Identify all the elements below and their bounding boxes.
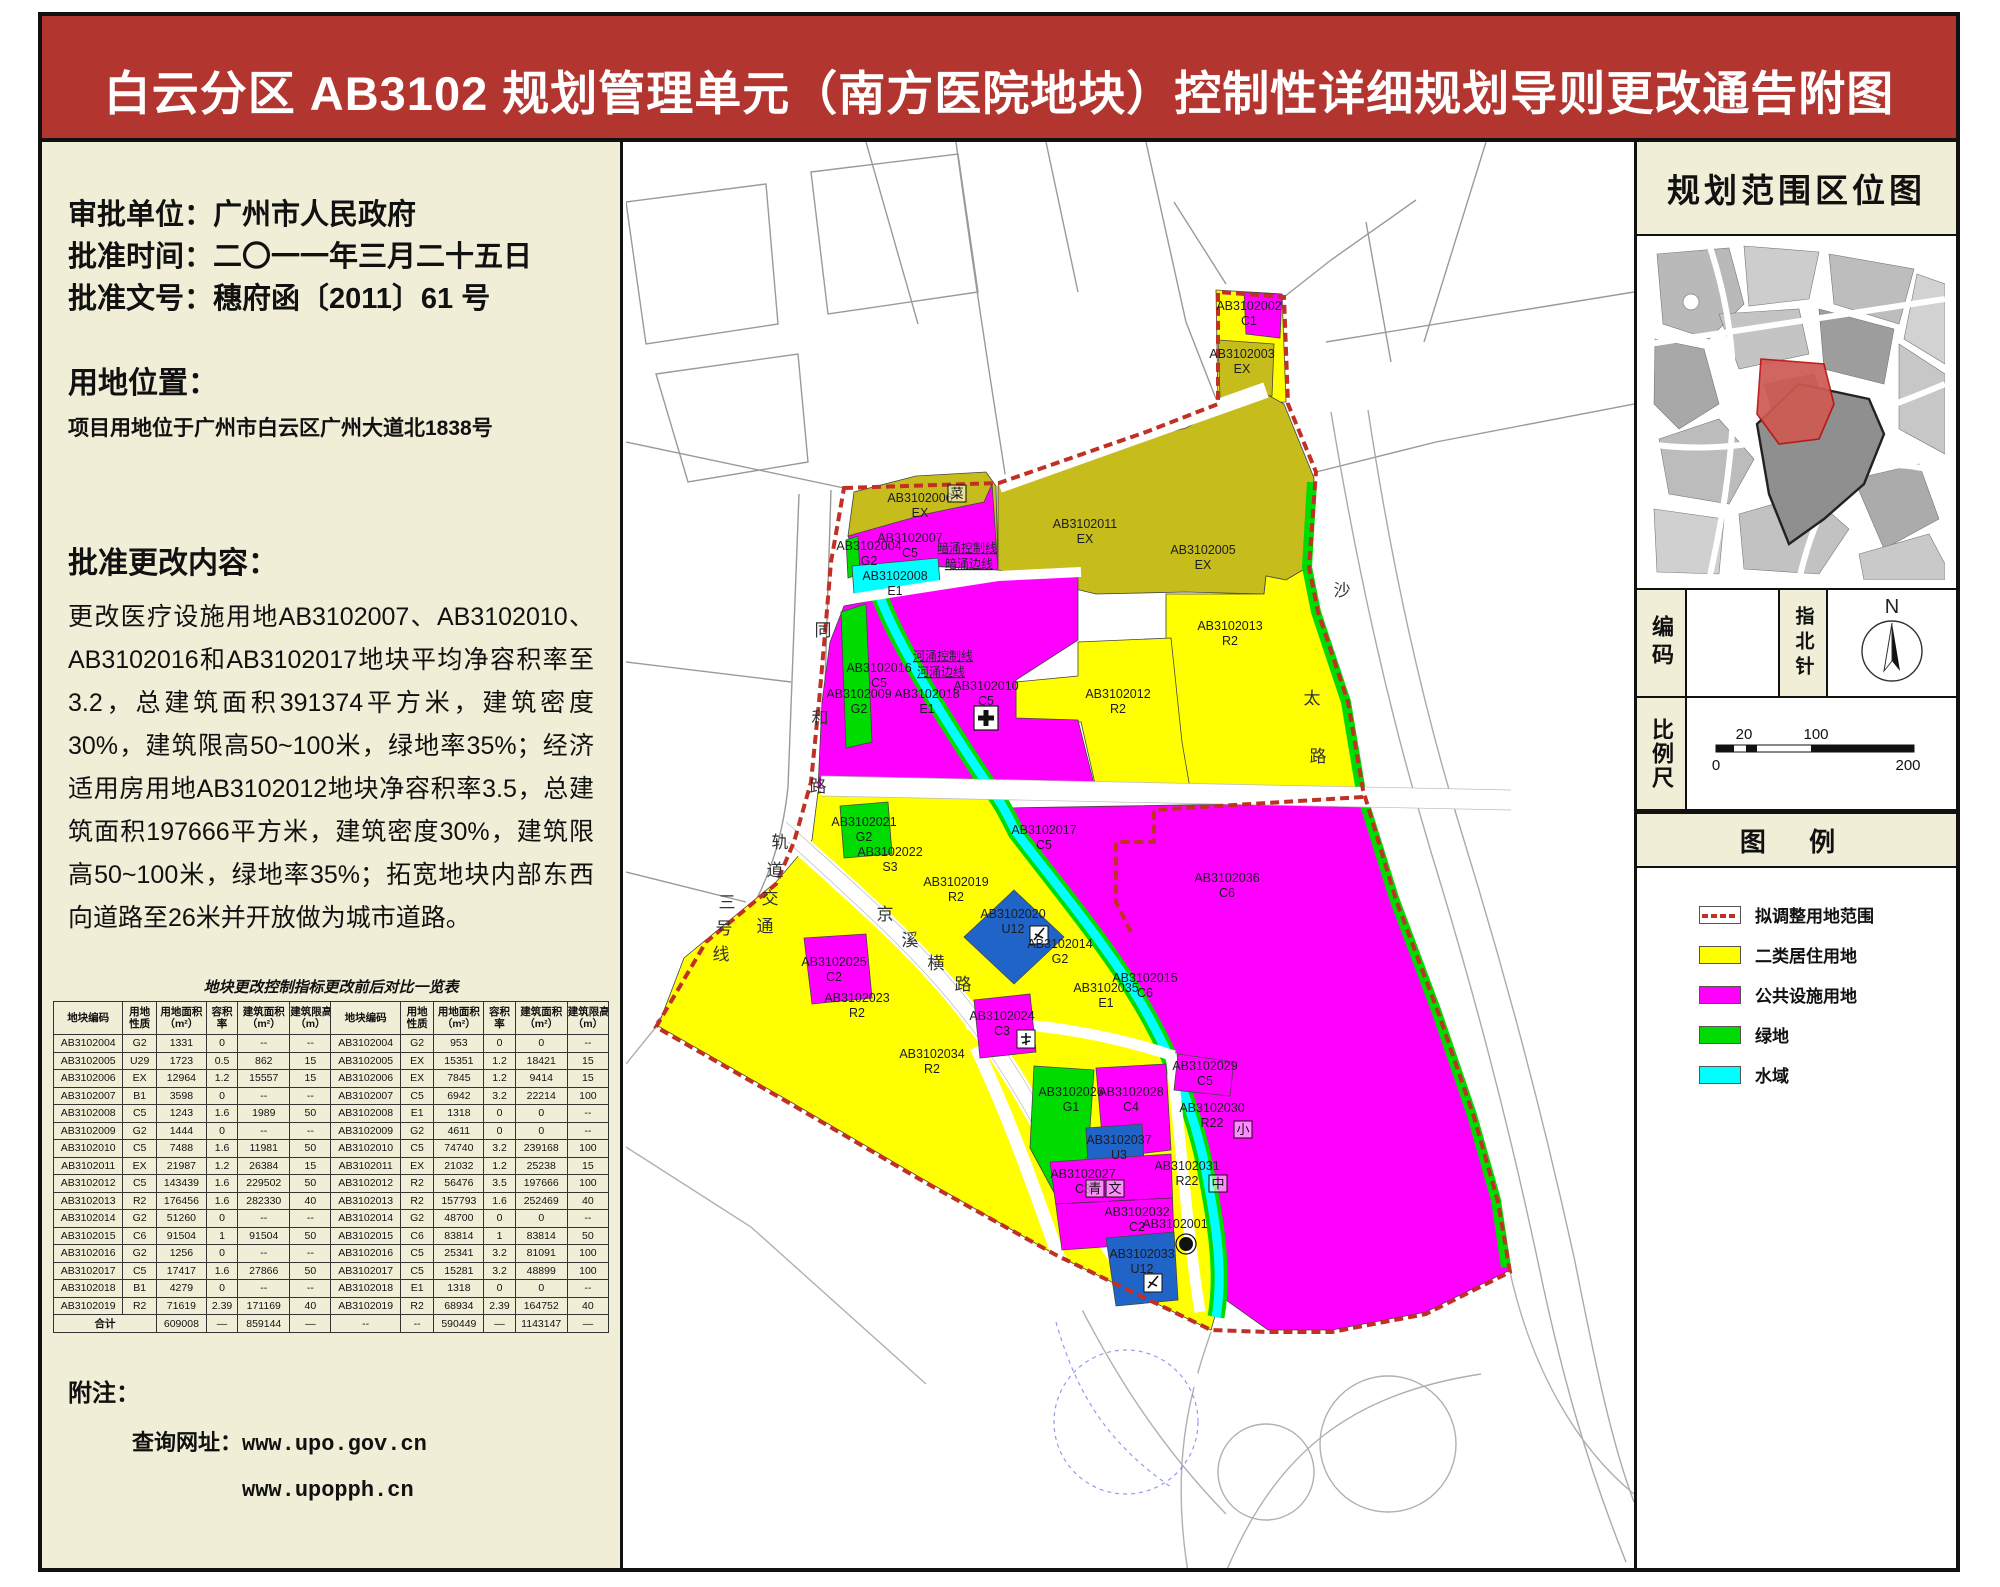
info-panel: 审批单位：广州市人民政府 批准时间：二〇一一年三月二十五日 批准文号：穗府函〔2… — [42, 142, 623, 1568]
legend-swatch — [1699, 906, 1741, 924]
scale-label-cell: 比例尺 — [1637, 698, 1687, 809]
scale-bar-cell: 20 100 0 200 — [1687, 698, 1956, 809]
north-arrow-icon: N — [1844, 595, 1940, 691]
legend-label: 水域 — [1755, 1062, 1789, 1087]
road-name-轨道交通三号线: 号 — [716, 919, 733, 938]
poster: 白云分区 AB3102 规划管理单元（南方医院地块）控制性详细规划导则更改通告附… — [0, 0, 2000, 1587]
query-url-2[interactable]: www.upopph.cn — [242, 1478, 414, 1503]
legend-label: 二类居住用地 — [1755, 942, 1857, 967]
col-header: 建筑限高（m） — [567, 1002, 608, 1035]
table-row: AB3102018B142790----AB3102018E1131800-- — [54, 1280, 609, 1298]
road-name-轨道交通三号线: 通 — [757, 917, 774, 936]
svg-text:中: 中 — [1211, 1176, 1224, 1191]
table-row: AB3102005U2917230.586215AB3102005EX15351… — [54, 1052, 609, 1070]
badge-小: 小 — [1234, 1121, 1252, 1138]
legend-item: 水域 — [1699, 1062, 1956, 1087]
compass-label-cell: 指北针 — [1778, 590, 1828, 696]
changes-text: 更改医疗设施用地AB3102007、AB3102010、AB3102016和AB… — [68, 596, 594, 940]
road-name-轨道交通三号线: 三 — [719, 893, 736, 912]
col-header: 用地性质 — [123, 1002, 157, 1035]
table-row: AB3102008C512431.6198950AB3102008E113180… — [54, 1105, 609, 1123]
col-header: 用地面积（m²） — [156, 1002, 206, 1035]
comparison-table-body: AB3102004G213310----AB3102004G295300--AB… — [54, 1035, 609, 1333]
approval-info: 审批单位：广州市人民政府 批准时间：二〇一一年三月二十五日 批准文号：穗府函〔2… — [68, 194, 620, 320]
query-url-1[interactable]: www.upo.gov.cn — [242, 1432, 427, 1457]
col-header: 地块编码 — [331, 1002, 400, 1035]
col-header: 建筑限高（m） — [290, 1002, 331, 1035]
road-name-同和路: 同 — [815, 621, 832, 640]
road-name-轨道交通三号线: 交 — [762, 889, 779, 908]
legend-title: 图 例 — [1637, 812, 1956, 868]
totals-row: 合计609008—859144—----590449—1143147— — [54, 1315, 609, 1333]
svg-text:菜: 菜 — [950, 486, 963, 501]
legend-list: 拟调整用地范围二类居住用地公共设施用地绿地水域 — [1637, 868, 1956, 1087]
legend-item: 拟调整用地范围 — [1699, 902, 1956, 927]
col-header: 地块编码 — [54, 1002, 123, 1035]
location-minimap[interactable] — [1637, 236, 1956, 588]
table-row: AB3102014G2512600----AB3102014G24870000-… — [54, 1210, 609, 1228]
table-row: AB3102004G213310----AB3102004G295300-- — [54, 1035, 609, 1053]
table-row: AB3102012C51434391.622950250AB3102012R25… — [54, 1175, 609, 1193]
table-row: AB3102013R21764561.628233040AB3102013R21… — [54, 1192, 609, 1210]
badge-文: 文 — [1106, 1180, 1124, 1197]
road-name-沙太路: 路 — [1310, 747, 1327, 766]
legend-label: 绿地 — [1755, 1022, 1789, 1047]
badge-菜: 菜 — [948, 485, 966, 502]
col-header: 建筑面积（m²） — [515, 1002, 567, 1035]
table-row: AB3102019R2716192.3917116940AB3102019R26… — [54, 1297, 609, 1315]
parcel-label-AB3102001: AB3102001 — [1142, 1217, 1207, 1231]
notes-label: 附注： — [68, 1373, 620, 1408]
query-label: 查询网址： — [132, 1432, 242, 1457]
table-row: AB3102011EX219871.22638415AB3102011EX210… — [54, 1157, 609, 1175]
legend-swatch — [1699, 986, 1741, 1004]
table-row: AB3102006EX129641.21555715AB3102006EX784… — [54, 1070, 609, 1088]
road-name-沙太路: 太 — [1304, 689, 1321, 708]
table-row: AB3102010C574881.61198150AB3102010C57474… — [54, 1140, 609, 1158]
zoning-map[interactable]: AB3102002C1AB3102003EXAB3102004G2AB31020… — [626, 142, 1634, 1568]
parcel-AB3102013-area — [1166, 567, 1363, 800]
location-heading: 用地位置： — [68, 358, 620, 402]
comparison-table-title: 地块更改控制指标更改前后对比一览表 — [42, 976, 620, 997]
approval-doc-number: 批准文号：穗府函〔2011〕61 号 — [68, 278, 620, 320]
annotation-暗涌控制线: 暗涌控制线 — [937, 540, 997, 555]
legend-item: 公共设施用地 — [1699, 982, 1956, 1007]
location-map-title: 规划范围区位图 — [1637, 142, 1956, 236]
hospital-cross-icon — [974, 706, 998, 730]
col-header: 建筑面积（m²） — [238, 1002, 290, 1035]
legend-label: 拟调整用地范围 — [1755, 902, 1874, 927]
road-name-同和路: 路 — [810, 777, 827, 796]
svg-text:文: 文 — [1108, 1181, 1121, 1196]
utility-icon-33 — [1144, 1274, 1162, 1292]
annotation-河涌边线: 河涌边线 — [917, 665, 965, 679]
pump-station-icon — [1176, 1234, 1196, 1254]
road-name-同和路: 和 — [812, 709, 829, 728]
col-header: 容积率 — [484, 1002, 515, 1035]
badge-青: 青 — [1086, 1180, 1104, 1197]
legend-item: 二类居住用地 — [1699, 942, 1956, 967]
table-row: AB3102015C69150419150450AB3102015C683814… — [54, 1227, 609, 1245]
page-title: 白云分区 AB3102 规划管理单元（南方医院地块）控制性详细规划导则更改通告附… — [104, 55, 1895, 138]
code-label-cell: 编码 — [1637, 590, 1687, 696]
table-row: AB3102007B135980----AB3102007C569423.222… — [54, 1087, 609, 1105]
approval-agency: 审批单位：广州市人民政府 — [68, 194, 620, 236]
svg-text:小: 小 — [1236, 1122, 1249, 1137]
cultural-facility-icon — [1017, 1030, 1035, 1048]
changes-heading: 批准更改内容： — [68, 538, 620, 582]
svg-text:青: 青 — [1088, 1181, 1101, 1196]
table-row: AB3102009G214440----AB3102009G2461100-- — [54, 1122, 609, 1140]
annotation-河涌控制线: 河涌控制线 — [913, 649, 973, 663]
annotation-暗涌边线: 暗涌边线 — [945, 556, 993, 571]
svg-text:200: 200 — [1895, 757, 1920, 774]
road-name-沙太路: 沙 — [1334, 581, 1351, 600]
legend-swatch — [1699, 1026, 1741, 1044]
badge-中: 中 — [1209, 1175, 1227, 1192]
table-row: AB3102016G212560----AB3102016C5253413.28… — [54, 1245, 609, 1263]
scale-bar: 20 100 0 200 — [1704, 723, 1940, 785]
svg-text:0: 0 — [1711, 757, 1719, 774]
svg-text:20: 20 — [1735, 726, 1752, 743]
svg-text:100: 100 — [1803, 726, 1828, 743]
comparison-table-header: 地块编码用地性质用地面积（m²）容积率建筑面积（m²）建筑限高（m）地块编码用地… — [54, 1002, 609, 1035]
comparison-table: 地块编码用地性质用地面积（m²）容积率建筑面积（m²）建筑限高（m）地块编码用地… — [53, 1001, 609, 1333]
legend-label: 公共设施用地 — [1755, 982, 1857, 1007]
sheet-border: 白云分区 AB3102 规划管理单元（南方医院地块）控制性详细规划导则更改通告附… — [38, 12, 1960, 1572]
query-urls: 查询网址：www.upo.gov.cn 查询网址：www.upopph.cn — [132, 1422, 620, 1514]
approval-date: 批准时间：二〇一一年三月二十五日 — [68, 236, 620, 278]
title-banner: 白云分区 AB3102 规划管理单元（南方医院地块）控制性详细规划导则更改通告附… — [42, 16, 1956, 142]
legend-item: 绿地 — [1699, 1022, 1956, 1047]
legend-swatch — [1699, 946, 1741, 964]
col-header: 容积率 — [206, 1002, 237, 1035]
code-value-cell — [1687, 590, 1778, 696]
col-header: 用地面积（m²） — [434, 1002, 484, 1035]
table-row: AB3102017C5174171.62786650AB3102017C5152… — [54, 1262, 609, 1280]
svg-text:N: N — [1885, 596, 1899, 618]
road-name-京溪横路: 京 — [877, 905, 894, 924]
road-name-轨道交通三号线: 道 — [767, 861, 784, 880]
road-name-轨道交通三号线: 线 — [713, 945, 730, 964]
road-name-轨道交通三号线: 轨 — [772, 833, 789, 852]
legend-swatch — [1699, 1066, 1741, 1084]
road-name-京溪横路: 路 — [955, 975, 972, 994]
road-name-京溪横路: 溪 — [902, 931, 919, 950]
road-name-京溪横路: 横 — [928, 954, 945, 973]
minimap-lake-dot — [1683, 294, 1699, 310]
side-panel: 规划范围区位图 — [1634, 142, 1956, 1568]
col-header: 用地性质 — [400, 1002, 434, 1035]
compass-cell: N — [1828, 590, 1956, 696]
location-text: 项目用地位于广州市白云区广州大道北1838号 — [68, 412, 620, 442]
